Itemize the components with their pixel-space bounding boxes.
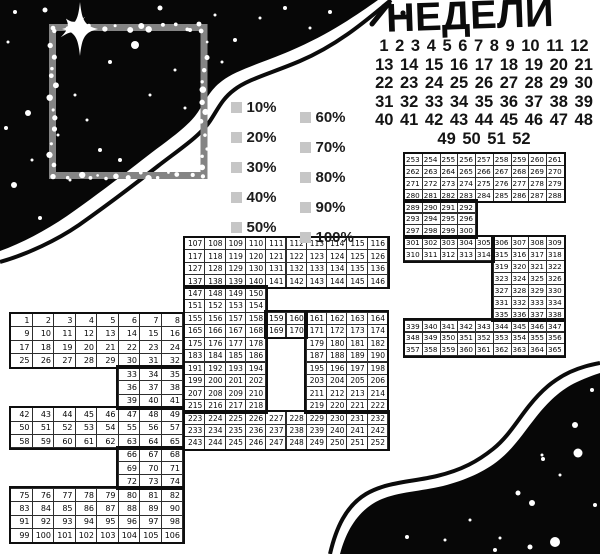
- day-cell[interactable]: 188: [326, 349, 347, 362]
- star-icon: [113, 174, 119, 180]
- day-cell[interactable]: 207: [184, 386, 205, 399]
- day-cell[interactable]: 137: [184, 274, 205, 287]
- day-cell[interactable]: 18: [32, 340, 55, 354]
- day-cell[interactable]: 142: [286, 274, 307, 287]
- day-cell[interactable]: 247: [265, 436, 286, 449]
- day-cell[interactable]: 52: [53, 421, 76, 435]
- star-icon: [559, 474, 562, 477]
- day-cell[interactable]: 365: [546, 343, 565, 356]
- day-cell[interactable]: 21: [96, 340, 119, 354]
- day-cell[interactable]: 20: [75, 340, 98, 354]
- day-cell[interactable]: 205: [346, 374, 367, 387]
- day-cell[interactable]: 147: [184, 287, 205, 300]
- week-numbers-row: 13 14 15 16 17 18 19 20 21: [368, 56, 600, 75]
- day-cell[interactable]: 233: [184, 424, 205, 437]
- day-cell[interactable]: 173: [346, 324, 367, 337]
- day-cell[interactable]: 36: [118, 380, 141, 394]
- day-cell[interactable]: 135: [346, 262, 367, 275]
- day-cell[interactable]: 251: [346, 436, 367, 449]
- day-cell[interactable]: 129: [225, 262, 246, 275]
- day-cell[interactable]: 189: [346, 349, 367, 362]
- star-icon: [145, 26, 151, 32]
- day-cell[interactable]: 312: [440, 248, 459, 261]
- day-cell[interactable]: 128: [204, 262, 225, 275]
- day-cell[interactable]: 58: [10, 434, 33, 448]
- day-cell[interactable]: 79: [96, 488, 119, 502]
- day-cell[interactable]: 149: [225, 287, 246, 300]
- star-icon: [108, 60, 112, 64]
- day-cell[interactable]: 6: [118, 313, 141, 327]
- day-cell[interactable]: 208: [204, 386, 225, 399]
- day-cell[interactable]: 203: [306, 374, 327, 387]
- day-cell[interactable]: 23: [139, 340, 162, 354]
- star-icon: [31, 159, 34, 162]
- day-cell[interactable]: 13: [96, 326, 119, 340]
- day-cell[interactable]: 34: [139, 367, 162, 381]
- day-cell[interactable]: 159: [265, 312, 286, 325]
- day-cell[interactable]: 246: [245, 436, 266, 449]
- day-cell[interactable]: 82: [161, 488, 184, 502]
- day-cell[interactable]: 81: [139, 488, 162, 502]
- day-cell[interactable]: 15: [139, 326, 162, 340]
- star-icon: [102, 26, 107, 31]
- star-icon: [529, 500, 535, 506]
- day-cell[interactable]: 91: [10, 515, 33, 529]
- day-cell[interactable]: 170: [286, 324, 307, 337]
- day-cell[interactable]: 73: [139, 474, 162, 488]
- day-cell[interactable]: 120: [245, 249, 266, 262]
- day-cell[interactable]: 59: [32, 434, 55, 448]
- day-cell[interactable]: 3: [53, 313, 76, 327]
- day-cell[interactable]: 151: [184, 299, 205, 312]
- day-cell[interactable]: 204: [326, 374, 347, 387]
- day-cell[interactable]: 78: [75, 488, 98, 502]
- day-cell[interactable]: 25: [10, 353, 33, 367]
- day-cell[interactable]: 96: [118, 515, 141, 529]
- day-cell[interactable]: 42: [10, 407, 33, 421]
- day-cell[interactable]: 125: [346, 249, 367, 262]
- day-cell[interactable]: 89: [139, 501, 162, 515]
- star-icon: [233, 38, 237, 42]
- day-cell[interactable]: 198: [367, 362, 388, 375]
- day-cell[interactable]: 172: [326, 324, 347, 337]
- day-cell[interactable]: 248: [286, 436, 307, 449]
- day-cell[interactable]: 224: [204, 411, 225, 424]
- day-cell[interactable]: 195: [306, 362, 327, 375]
- day-cell[interactable]: 124: [326, 249, 347, 262]
- day-cell[interactable]: 27: [53, 353, 76, 367]
- day-cell[interactable]: 29: [96, 353, 119, 367]
- day-cell[interactable]: 178: [245, 337, 266, 350]
- day-cell[interactable]: 140: [245, 274, 266, 287]
- day-cell[interactable]: 54: [96, 421, 119, 435]
- day-cell[interactable]: 166: [204, 324, 225, 337]
- day-cell[interactable]: 93: [53, 515, 76, 529]
- legend-swatch: [300, 142, 311, 153]
- day-cell[interactable]: 231: [346, 411, 367, 424]
- day-cell[interactable]: 40: [139, 394, 162, 408]
- day-cell[interactable]: 232: [367, 411, 388, 424]
- day-cell[interactable]: 45: [75, 407, 98, 421]
- day-cell[interactable]: 49: [161, 407, 184, 421]
- day-cell[interactable]: 223: [184, 411, 205, 424]
- week-numbers-row: 49 50 51 52: [368, 130, 600, 149]
- day-cell[interactable]: 286: [511, 189, 530, 202]
- day-cell[interactable]: 76: [32, 488, 55, 502]
- day-cell[interactable]: 130: [245, 262, 266, 275]
- day-cell[interactable]: 192: [204, 362, 225, 375]
- day-cell[interactable]: 43: [32, 407, 55, 421]
- day-cell[interactable]: 35: [161, 367, 184, 381]
- day-cell[interactable]: 239: [306, 424, 327, 437]
- day-cell[interactable]: 154: [245, 299, 266, 312]
- star-icon: [572, 422, 578, 428]
- day-cell[interactable]: 70: [139, 461, 162, 475]
- day-cell[interactable]: 145: [346, 274, 367, 287]
- day-cell[interactable]: 157: [225, 312, 246, 325]
- day-cell[interactable]: 84: [32, 501, 55, 515]
- day-cell[interactable]: 186: [245, 349, 266, 362]
- day-cell[interactable]: 122: [286, 249, 307, 262]
- day-cell[interactable]: 61: [75, 434, 98, 448]
- day-cell[interactable]: 220: [326, 399, 347, 412]
- day-cell[interactable]: 357: [404, 343, 423, 356]
- day-cell[interactable]: 229: [306, 411, 327, 424]
- day-cell[interactable]: 127: [184, 262, 205, 275]
- day-cell[interactable]: 111: [265, 237, 286, 250]
- day-cell[interactable]: 108: [204, 237, 225, 250]
- day-cell[interactable]: 287: [528, 189, 547, 202]
- day-cell[interactable]: 171: [306, 324, 327, 337]
- day-cell[interactable]: 156: [204, 312, 225, 325]
- day-cell[interactable]: 50: [10, 421, 33, 435]
- day-cell[interactable]: 98: [161, 515, 184, 529]
- day-cell[interactable]: 37: [139, 380, 162, 394]
- day-cell[interactable]: 131: [265, 262, 286, 275]
- day-cell[interactable]: 284: [475, 189, 494, 202]
- day-cell[interactable]: 241: [346, 424, 367, 437]
- day-cell[interactable]: 116: [367, 237, 388, 250]
- day-cell[interactable]: 359: [440, 343, 459, 356]
- day-cell[interactable]: 249: [306, 436, 327, 449]
- day-cell[interactable]: 148: [204, 287, 225, 300]
- star-icon: [167, 171, 170, 174]
- day-cell[interactable]: 201: [225, 374, 246, 387]
- day-cell[interactable]: 83: [10, 501, 33, 515]
- day-cell[interactable]: 222: [367, 399, 388, 412]
- day-cell[interactable]: 250: [326, 436, 347, 449]
- day-cell[interactable]: 4: [75, 313, 98, 327]
- day-cell[interactable]: 126: [367, 249, 388, 262]
- day-cell[interactable]: 227: [265, 411, 286, 424]
- day-cell[interactable]: 62: [96, 434, 119, 448]
- day-cell[interactable]: 221: [346, 399, 367, 412]
- star-icon: [131, 41, 139, 49]
- day-cell[interactable]: 138: [204, 274, 225, 287]
- day-cell[interactable]: 165: [184, 324, 205, 337]
- day-cell[interactable]: 80: [118, 488, 141, 502]
- star-icon: [174, 23, 178, 27]
- day-cell[interactable]: 51: [32, 421, 55, 435]
- day-cell[interactable]: 117: [184, 249, 205, 262]
- day-cell[interactable]: 39: [118, 394, 141, 408]
- day-cell[interactable]: 19: [53, 340, 76, 354]
- day-cell[interactable]: 105: [139, 528, 162, 542]
- day-cell[interactable]: 71: [161, 461, 184, 475]
- day-cell[interactable]: 5: [96, 313, 119, 327]
- day-cell[interactable]: 104: [118, 528, 141, 542]
- day-cell[interactable]: 214: [367, 386, 388, 399]
- day-cell[interactable]: 7: [139, 313, 162, 327]
- day-cell[interactable]: 86: [75, 501, 98, 515]
- day-cell[interactable]: 197: [346, 362, 367, 375]
- day-cell[interactable]: 97: [139, 515, 162, 529]
- day-cell[interactable]: 158: [245, 312, 266, 325]
- day-cell[interactable]: 141: [265, 274, 286, 287]
- day-cell[interactable]: 162: [326, 312, 347, 325]
- day-cell[interactable]: 363: [511, 343, 530, 356]
- day-cell[interactable]: 53: [75, 421, 98, 435]
- day-cell[interactable]: 26: [32, 353, 55, 367]
- star-icon: [188, 28, 192, 32]
- day-cell[interactable]: 310: [404, 248, 423, 261]
- day-cell[interactable]: 238: [286, 424, 307, 437]
- day-cell[interactable]: 194: [245, 362, 266, 375]
- day-cell[interactable]: 206: [367, 374, 388, 387]
- day-cell[interactable]: 1: [10, 313, 33, 327]
- day-cell[interactable]: 213: [346, 386, 367, 399]
- day-cell[interactable]: 44: [53, 407, 76, 421]
- day-cell[interactable]: 31: [139, 353, 162, 367]
- day-cell[interactable]: 32: [161, 353, 184, 367]
- day-cell[interactable]: 164: [367, 312, 388, 325]
- day-cell[interactable]: 87: [96, 501, 119, 515]
- day-cell[interactable]: 133: [306, 262, 327, 275]
- day-cell[interactable]: 9: [10, 326, 33, 340]
- day-cell[interactable]: 358: [422, 343, 441, 356]
- day-cell[interactable]: 55: [118, 421, 141, 435]
- day-cell[interactable]: 288: [546, 189, 565, 202]
- day-cell[interactable]: 68: [161, 448, 184, 462]
- star-icon: [200, 80, 203, 83]
- day-cell[interactable]: 230: [326, 411, 347, 424]
- day-cell[interactable]: 41: [161, 394, 184, 408]
- day-cell[interactable]: 57: [161, 421, 184, 435]
- day-cell[interactable]: 252: [367, 436, 388, 449]
- day-cell[interactable]: 10: [32, 326, 55, 340]
- day-cell[interactable]: 174: [367, 324, 388, 337]
- day-cell[interactable]: 313: [457, 248, 476, 261]
- day-cell[interactable]: 243: [184, 436, 205, 449]
- day-cell[interactable]: 123: [306, 249, 327, 262]
- day-cell[interactable]: 143: [306, 274, 327, 287]
- day-cell[interactable]: 181: [346, 337, 367, 350]
- day-cell[interactable]: 69: [118, 461, 141, 475]
- legend-item: 60%: [300, 109, 354, 126]
- day-cell[interactable]: 88: [118, 501, 141, 515]
- day-cell[interactable]: 175: [184, 337, 205, 350]
- day-cell[interactable]: 110: [245, 237, 266, 250]
- day-cell[interactable]: 193: [225, 362, 246, 375]
- day-cell[interactable]: 219: [306, 399, 327, 412]
- day-cell[interactable]: 90: [161, 501, 184, 515]
- legend-label: 60%: [316, 109, 346, 126]
- day-cell[interactable]: 75: [10, 488, 33, 502]
- day-cell[interactable]: 163: [346, 312, 367, 325]
- star-icon: [4, 126, 8, 130]
- star-icon: [214, 14, 217, 17]
- day-cell[interactable]: 210: [245, 386, 266, 399]
- day-cell[interactable]: 38: [161, 380, 184, 394]
- day-cell[interactable]: 94: [75, 515, 98, 529]
- day-cell[interactable]: 177: [225, 337, 246, 350]
- day-cell[interactable]: 245: [225, 436, 246, 449]
- day-cell[interactable]: 74: [161, 474, 184, 488]
- star-icon: [199, 29, 204, 34]
- day-cell[interactable]: 196: [326, 362, 347, 375]
- star-icon: [52, 163, 57, 168]
- day-cell[interactable]: 212: [326, 386, 347, 399]
- day-cell[interactable]: 180: [326, 337, 347, 350]
- day-cell[interactable]: 191: [184, 362, 205, 375]
- day-cell[interactable]: 134: [326, 262, 347, 275]
- day-cell[interactable]: 240: [326, 424, 347, 437]
- day-cell[interactable]: 17: [10, 340, 33, 354]
- day-cell[interactable]: 2: [32, 313, 55, 327]
- day-cell[interactable]: 85: [53, 501, 76, 515]
- day-cell[interactable]: 218: [245, 399, 266, 412]
- day-cell[interactable]: 360: [457, 343, 476, 356]
- day-cell[interactable]: 314: [475, 248, 494, 261]
- day-cell[interactable]: 183: [184, 349, 205, 362]
- day-cell[interactable]: 167: [225, 324, 246, 337]
- day-cell[interactable]: 106: [161, 528, 184, 542]
- star-icon: [66, 176, 70, 180]
- day-cell[interactable]: 202: [245, 374, 266, 387]
- day-cell[interactable]: 211: [306, 386, 327, 399]
- day-cell[interactable]: 107: [184, 237, 205, 250]
- day-cell[interactable]: 77: [53, 488, 76, 502]
- day-cell[interactable]: 217: [225, 399, 246, 412]
- star-icon: [199, 165, 205, 171]
- day-cell[interactable]: 242: [367, 424, 388, 437]
- day-cell[interactable]: 179: [306, 337, 327, 350]
- day-cell[interactable]: 176: [204, 337, 225, 350]
- day-cell[interactable]: 99: [10, 528, 33, 542]
- day-cell[interactable]: 56: [139, 421, 162, 435]
- day-cell[interactable]: 153: [225, 299, 246, 312]
- day-cell[interactable]: 102: [75, 528, 98, 542]
- day-cell[interactable]: 160: [286, 312, 307, 325]
- day-cell[interactable]: 33: [118, 367, 141, 381]
- day-cell[interactable]: 311: [422, 248, 441, 261]
- day-cell[interactable]: 72: [118, 474, 141, 488]
- day-cell[interactable]: 66: [118, 448, 141, 462]
- day-cell[interactable]: 146: [367, 274, 388, 287]
- day-cell[interactable]: 22: [118, 340, 141, 354]
- day-cell[interactable]: 24: [161, 340, 184, 354]
- day-cell[interactable]: 95: [96, 515, 119, 529]
- day-cell[interactable]: 30: [118, 353, 141, 367]
- day-cell[interactable]: 236: [245, 424, 266, 437]
- day-cell[interactable]: 47: [118, 407, 141, 421]
- day-cell[interactable]: 118: [204, 249, 225, 262]
- day-cell[interactable]: 364: [528, 343, 547, 356]
- day-cell[interactable]: 109: [225, 237, 246, 250]
- day-cell[interactable]: 64: [139, 434, 162, 448]
- day-cell[interactable]: 12: [75, 326, 98, 340]
- day-cell[interactable]: 60: [53, 434, 76, 448]
- day-cell[interactable]: 187: [306, 349, 327, 362]
- day-cell[interactable]: 285: [493, 189, 512, 202]
- day-cell[interactable]: 361: [475, 343, 494, 356]
- day-cell[interactable]: 168: [245, 324, 266, 337]
- day-cell[interactable]: 150: [245, 287, 266, 300]
- day-cell[interactable]: 65: [161, 434, 184, 448]
- day-cell[interactable]: 228: [286, 411, 307, 424]
- day-cell[interactable]: 184: [204, 349, 225, 362]
- day-cell[interactable]: 28: [75, 353, 98, 367]
- day-cell[interactable]: 48: [139, 407, 162, 421]
- day-cell[interactable]: 200: [204, 374, 225, 387]
- day-cell[interactable]: 216: [204, 399, 225, 412]
- day-cell[interactable]: 100: [32, 528, 55, 542]
- day-cell[interactable]: 121: [265, 249, 286, 262]
- week-numbers-row: 1 2 3 4 5 6 7 8 9 10 11 12: [368, 37, 600, 56]
- day-cell[interactable]: 199: [184, 374, 205, 387]
- day-cell[interactable]: 155: [184, 312, 205, 325]
- day-cell[interactable]: 16: [161, 326, 184, 340]
- day-cell[interactable]: 63: [118, 434, 141, 448]
- star-icon: [469, 519, 472, 522]
- day-cell[interactable]: 46: [96, 407, 119, 421]
- day-cell[interactable]: 144: [326, 274, 347, 287]
- day-cell[interactable]: 185: [225, 349, 246, 362]
- day-cell[interactable]: 92: [32, 515, 55, 529]
- day-cell[interactable]: 152: [204, 299, 225, 312]
- day-cell[interactable]: 244: [204, 436, 225, 449]
- day-cell[interactable]: 139: [225, 274, 246, 287]
- day-cell[interactable]: 234: [204, 424, 225, 437]
- legend-item: 80%: [300, 169, 354, 186]
- star-icon: [590, 388, 594, 392]
- day-cell[interactable]: 182: [367, 337, 388, 350]
- star-icon: [259, 17, 262, 20]
- star-icon: [201, 174, 205, 178]
- day-cell[interactable]: 67: [139, 448, 162, 462]
- day-cell[interactable]: 103: [96, 528, 119, 542]
- day-cell[interactable]: 209: [225, 386, 246, 399]
- day-cell[interactable]: 161: [306, 312, 327, 325]
- day-cell[interactable]: 136: [367, 262, 388, 275]
- day-cell[interactable]: 119: [225, 249, 246, 262]
- legend-item: 100%: [300, 229, 354, 246]
- day-cell[interactable]: 190: [367, 349, 388, 362]
- day-cell[interactable]: 235: [225, 424, 246, 437]
- day-cell[interactable]: 14: [118, 326, 141, 340]
- day-cell[interactable]: 11: [53, 326, 76, 340]
- day-cell[interactable]: 8: [161, 313, 184, 327]
- day-cell[interactable]: 226: [245, 411, 266, 424]
- day-cell[interactable]: 215: [184, 399, 205, 412]
- day-cell[interactable]: 132: [286, 262, 307, 275]
- day-cell[interactable]: 237: [265, 424, 286, 437]
- star-icon: [206, 41, 209, 44]
- day-cell[interactable]: 169: [265, 324, 286, 337]
- day-cell[interactable]: 225: [225, 411, 246, 424]
- day-cell[interactable]: 101: [53, 528, 76, 542]
- day-cell[interactable]: 362: [493, 343, 512, 356]
